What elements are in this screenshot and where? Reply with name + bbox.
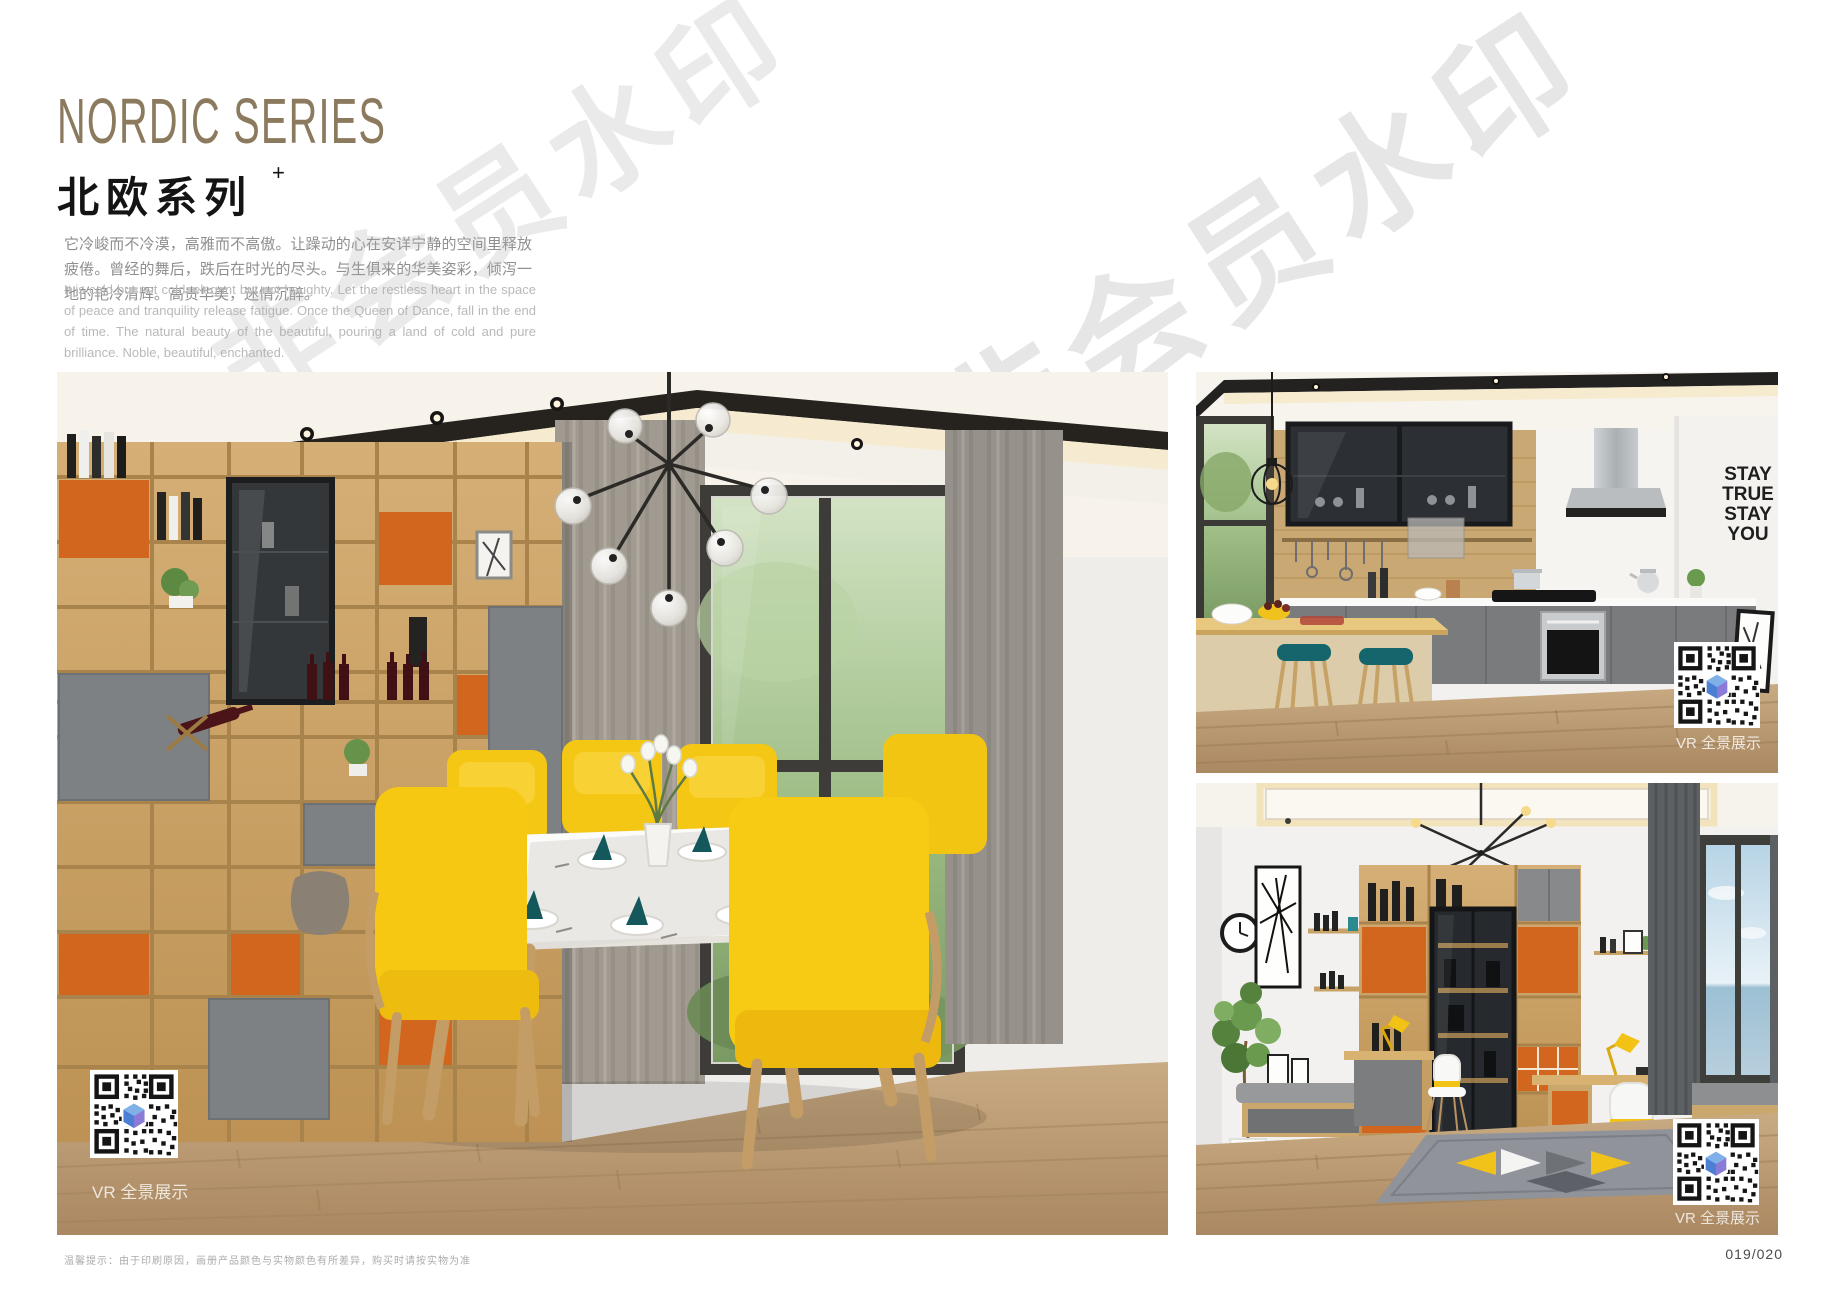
glass-display-cabinet — [1432, 909, 1514, 1137]
photo-dining-room: VR 全景展示 — [57, 372, 1168, 1235]
qr-code — [90, 1070, 178, 1158]
page-subtitle-cn: 北欧系列 — [57, 164, 253, 225]
wall-decal-stay-true: STAY TRUE STAY YOU — [1722, 464, 1774, 545]
svg-text:TRUE: TRUE — [1722, 484, 1774, 505]
catalog-page: NORDIC SERIES 北欧系列 + 它冷峻而不冷漠，高雅而不高傲。让躁动的… — [0, 0, 1836, 1307]
qr-code — [1674, 642, 1760, 728]
photo-study-room: VR 全景展示 — [1196, 783, 1778, 1235]
ceramic-jar — [291, 871, 349, 935]
vr-caption: VR 全景展示 — [1675, 1209, 1760, 1227]
svg-text:STAY: STAY — [1724, 504, 1772, 525]
qr-code — [1673, 1119, 1759, 1205]
svg-text:STAY: STAY — [1724, 464, 1772, 485]
svg-text:YOU: YOU — [1727, 524, 1768, 545]
oven — [1541, 612, 1605, 680]
page-title: NORDIC SERIES — [57, 84, 386, 158]
vr-caption: VR 全景展示 — [92, 1183, 188, 1202]
intro-paragraph-en: It is cold but not cold, elegant but not… — [64, 279, 536, 363]
wall-clock — [1222, 915, 1258, 951]
window — [1696, 835, 1778, 1085]
footer-disclaimer: 温馨提示：由于印刷原因，画册产品颜色与实物颜色有所差异，购买时请按实物为准 — [64, 1252, 471, 1267]
photo-kitchen: STAY TRUE STAY YOU — [1196, 372, 1778, 773]
subtitle-plus-mark: + — [272, 160, 285, 186]
glass-upper-cabinet — [1288, 424, 1510, 524]
abstract-art-frame — [1256, 867, 1300, 987]
page-number: 019/020 — [1725, 1246, 1783, 1262]
vr-caption: VR 全景展示 — [1676, 734, 1761, 752]
